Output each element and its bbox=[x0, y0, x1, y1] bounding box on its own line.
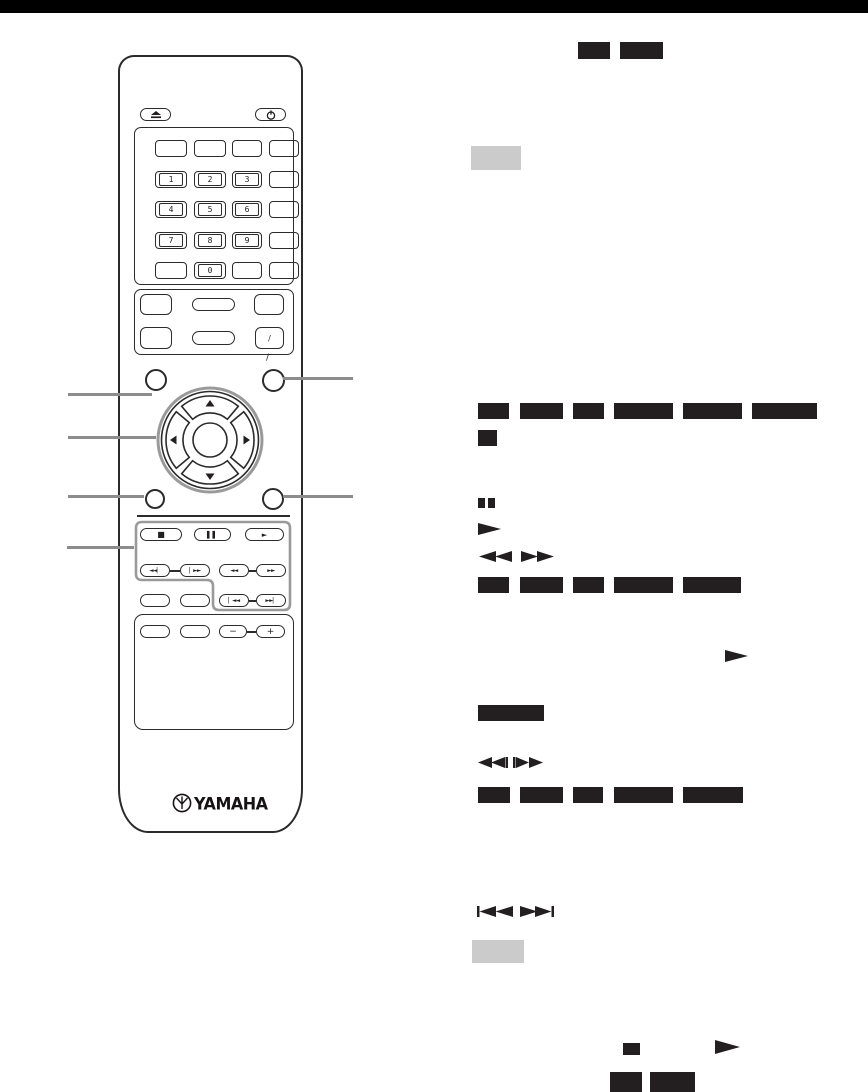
enter-button bbox=[193, 423, 227, 457]
manual-page: 1234567890 / / bbox=[0, 0, 868, 1092]
callout-line bbox=[67, 546, 134, 549]
slow-backward-icon bbox=[478, 757, 508, 768]
media-badge bbox=[683, 787, 743, 803]
key-blank bbox=[269, 140, 299, 157]
pause-icon: ▌▌ bbox=[207, 530, 218, 540]
media-badge bbox=[573, 787, 603, 803]
key-label: 5 bbox=[198, 203, 223, 216]
key-7: 7 bbox=[155, 232, 187, 249]
media-badge bbox=[614, 403, 673, 419]
slow-forward-icon bbox=[513, 757, 543, 768]
skip-forward-icon: ►►▏ bbox=[265, 596, 276, 606]
note-badge bbox=[472, 940, 524, 963]
callout-line bbox=[68, 495, 144, 498]
key-blank bbox=[269, 171, 299, 188]
divider bbox=[137, 515, 290, 517]
stop-button: ■ bbox=[140, 528, 182, 541]
search-reverse-button: ◄◄ bbox=[219, 564, 249, 577]
eject-button bbox=[140, 108, 171, 121]
media-badge bbox=[573, 577, 604, 593]
media-badge bbox=[578, 42, 610, 59]
callout-line bbox=[68, 393, 152, 396]
plus-icon: + bbox=[267, 627, 275, 637]
callout-line bbox=[283, 377, 353, 380]
function-button bbox=[180, 625, 210, 638]
minus-icon: − bbox=[229, 627, 237, 637]
yamaha-logo: YAMAHA bbox=[172, 793, 268, 813]
callout-line bbox=[283, 495, 353, 498]
function-button bbox=[140, 327, 172, 349]
key-blank bbox=[194, 140, 226, 157]
media-badge bbox=[683, 577, 741, 593]
play-button: ► bbox=[245, 528, 284, 541]
media-badge bbox=[478, 577, 509, 593]
function-button bbox=[140, 625, 170, 638]
media-badge bbox=[478, 705, 544, 721]
key-blank bbox=[269, 262, 299, 279]
play-icon: ► bbox=[262, 530, 267, 540]
button-connector bbox=[170, 570, 180, 572]
key-label: 4 bbox=[159, 203, 184, 216]
slow-backward-icon: ◄◄▏ bbox=[149, 566, 160, 576]
callout-line bbox=[68, 436, 156, 439]
media-badge bbox=[752, 403, 817, 419]
key-3: 3 bbox=[232, 171, 262, 188]
top-bar bbox=[0, 0, 868, 13]
media-badge bbox=[683, 403, 742, 419]
button-connector bbox=[249, 570, 256, 572]
key-blank bbox=[269, 201, 299, 218]
key-blank bbox=[269, 232, 299, 249]
key-4: 4 bbox=[155, 201, 187, 218]
stop-icon: ■ bbox=[157, 530, 165, 540]
key-label: 8 bbox=[198, 234, 223, 247]
cursor-pad bbox=[153, 383, 267, 497]
keypad-panel: 1234567890 bbox=[134, 127, 294, 285]
media-badge bbox=[614, 787, 673, 803]
brand-text: YAMAHA bbox=[194, 793, 268, 813]
key-label: 6 bbox=[235, 203, 258, 216]
search-forward-icon: ►► bbox=[267, 566, 274, 576]
key-label: 9 bbox=[235, 234, 258, 247]
button-connector bbox=[249, 600, 256, 602]
media-badge bbox=[520, 403, 563, 419]
play-icon bbox=[478, 523, 501, 535]
key-2: 2 bbox=[194, 171, 226, 188]
skip-forward-icon bbox=[520, 906, 554, 917]
media-badge bbox=[520, 577, 563, 593]
power-icon bbox=[266, 110, 276, 120]
function-button bbox=[192, 331, 235, 345]
stop-icon bbox=[623, 1043, 640, 1055]
key-blank bbox=[155, 262, 187, 279]
media-badge bbox=[478, 403, 509, 419]
skip-backward-icon: ▏◄◄ bbox=[228, 596, 239, 606]
key-5: 5 bbox=[194, 201, 226, 218]
function-button bbox=[192, 298, 235, 311]
skip-reverse-button: ▏◄◄ bbox=[219, 594, 249, 607]
search-forward-button: ►► bbox=[256, 564, 286, 577]
key-8: 8 bbox=[194, 232, 226, 249]
slow-forward-button: ▏►► bbox=[180, 564, 210, 577]
button-connector bbox=[247, 631, 256, 633]
play-icon bbox=[715, 1040, 740, 1054]
power-button bbox=[255, 108, 286, 121]
slash-button: / bbox=[255, 327, 284, 349]
function-button bbox=[254, 294, 284, 315]
slow-forward-icon: ▏►► bbox=[189, 566, 200, 576]
media-badge bbox=[573, 403, 604, 419]
slash-label: / bbox=[268, 334, 271, 343]
skip-backward-icon bbox=[477, 906, 513, 917]
skip-forward-button: ►►▏ bbox=[256, 594, 286, 607]
media-badge bbox=[610, 1072, 642, 1092]
eject-icon bbox=[150, 111, 162, 119]
key-1: 1 bbox=[155, 171, 187, 188]
volume-down-button: − bbox=[219, 625, 247, 638]
volume-up-button: + bbox=[256, 625, 285, 638]
media-badge bbox=[520, 787, 563, 803]
key-blank bbox=[232, 140, 262, 157]
media-badge bbox=[478, 787, 510, 803]
key-blank bbox=[232, 262, 262, 279]
media-badge bbox=[478, 430, 497, 446]
search-backward-icon bbox=[479, 551, 512, 562]
key-label: 2 bbox=[198, 173, 223, 186]
play-icon bbox=[725, 650, 748, 662]
remote-illustration: 1234567890 / / bbox=[118, 55, 303, 833]
slow-reverse-button: ◄◄▏ bbox=[140, 564, 170, 577]
search-backward-icon: ◄◄ bbox=[230, 566, 237, 576]
slash-tick: / bbox=[266, 353, 269, 363]
key-label: 0 bbox=[198, 264, 223, 277]
key-6: 6 bbox=[232, 201, 262, 218]
key-label: 1 bbox=[159, 173, 184, 186]
key-9: 9 bbox=[232, 232, 262, 249]
function-button bbox=[180, 594, 210, 607]
key-label: 7 bbox=[159, 234, 184, 247]
key-blank bbox=[155, 140, 187, 157]
media-badge bbox=[650, 1072, 695, 1092]
pause-icon bbox=[478, 498, 495, 508]
key-label: 3 bbox=[235, 173, 258, 186]
pause-button: ▌▌ bbox=[194, 528, 231, 541]
media-badge bbox=[614, 577, 673, 593]
function-button bbox=[140, 594, 170, 607]
yamaha-tuning-fork-icon bbox=[172, 793, 192, 813]
media-badge bbox=[620, 42, 663, 59]
search-forward-icon bbox=[521, 551, 554, 562]
function-button bbox=[140, 294, 172, 315]
note-badge bbox=[471, 146, 521, 170]
key-0: 0 bbox=[194, 262, 226, 279]
